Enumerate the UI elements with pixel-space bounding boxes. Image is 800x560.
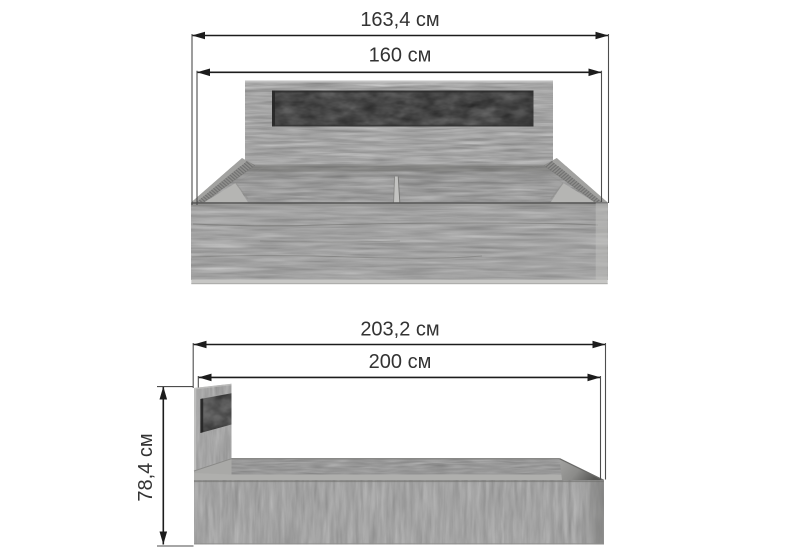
svg-text:200 см: 200 см	[369, 351, 432, 373]
svg-text:160 см: 160 см	[369, 45, 432, 67]
svg-text:203,2 см: 203,2 см	[360, 318, 439, 340]
svg-text:78,4 см: 78,4 см	[135, 433, 157, 501]
svg-text:163,4 см: 163,4 см	[360, 9, 439, 31]
